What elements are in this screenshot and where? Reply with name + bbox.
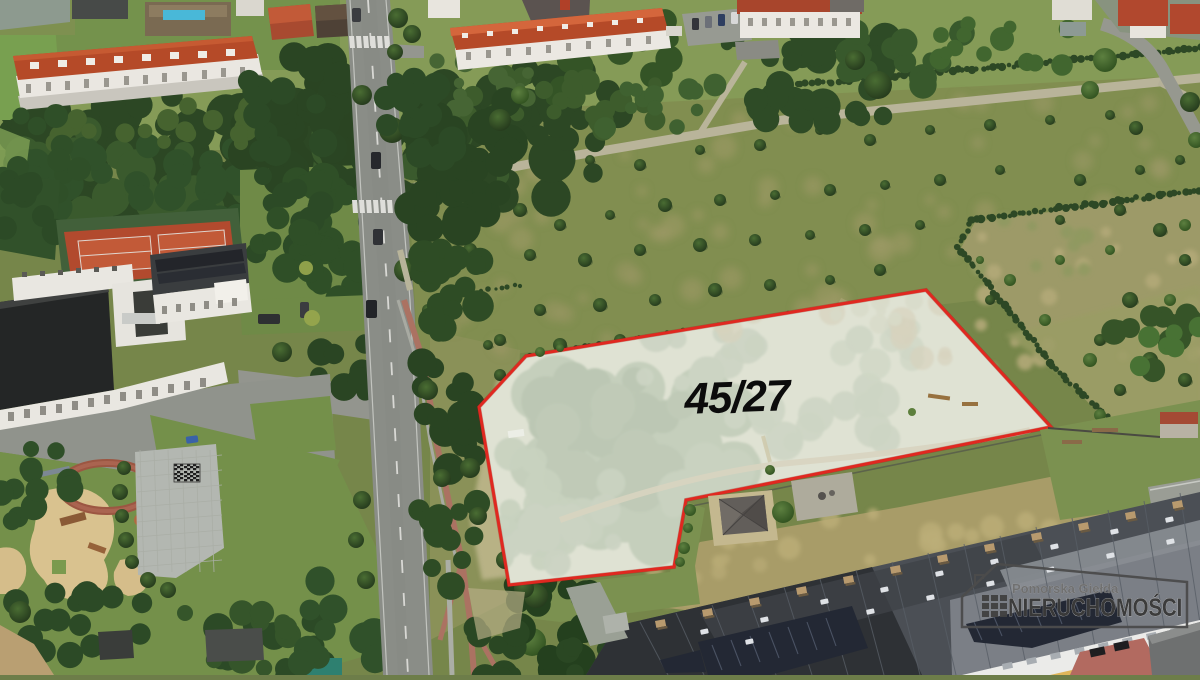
svg-text:45/27: 45/27 [683,371,794,424]
svg-text:NIERUCHOMOŚCI: NIERUCHOMOŚCI [1008,593,1182,622]
